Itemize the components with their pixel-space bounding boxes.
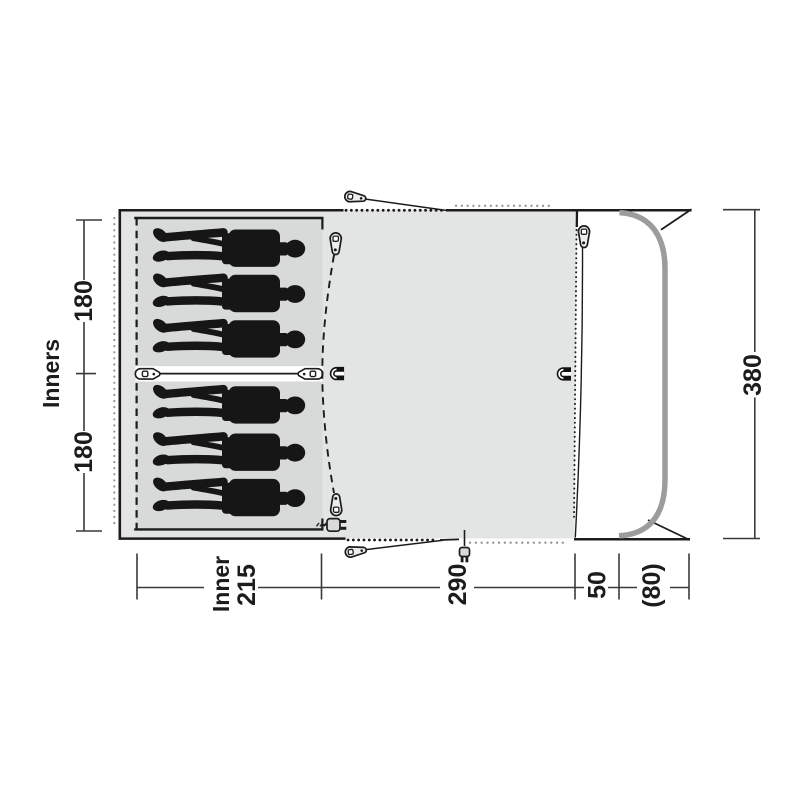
svg-text:215: 215 [233,564,261,606]
svg-text:50: 50 [584,571,612,599]
svg-text:180: 180 [70,280,98,322]
svg-text:(80): (80) [638,563,666,607]
svg-text:180: 180 [70,431,98,473]
svg-text:Inner: Inner [208,556,234,612]
svg-text:290: 290 [444,564,472,606]
svg-text:Inners: Inners [38,339,64,408]
svg-text:380: 380 [739,354,767,396]
